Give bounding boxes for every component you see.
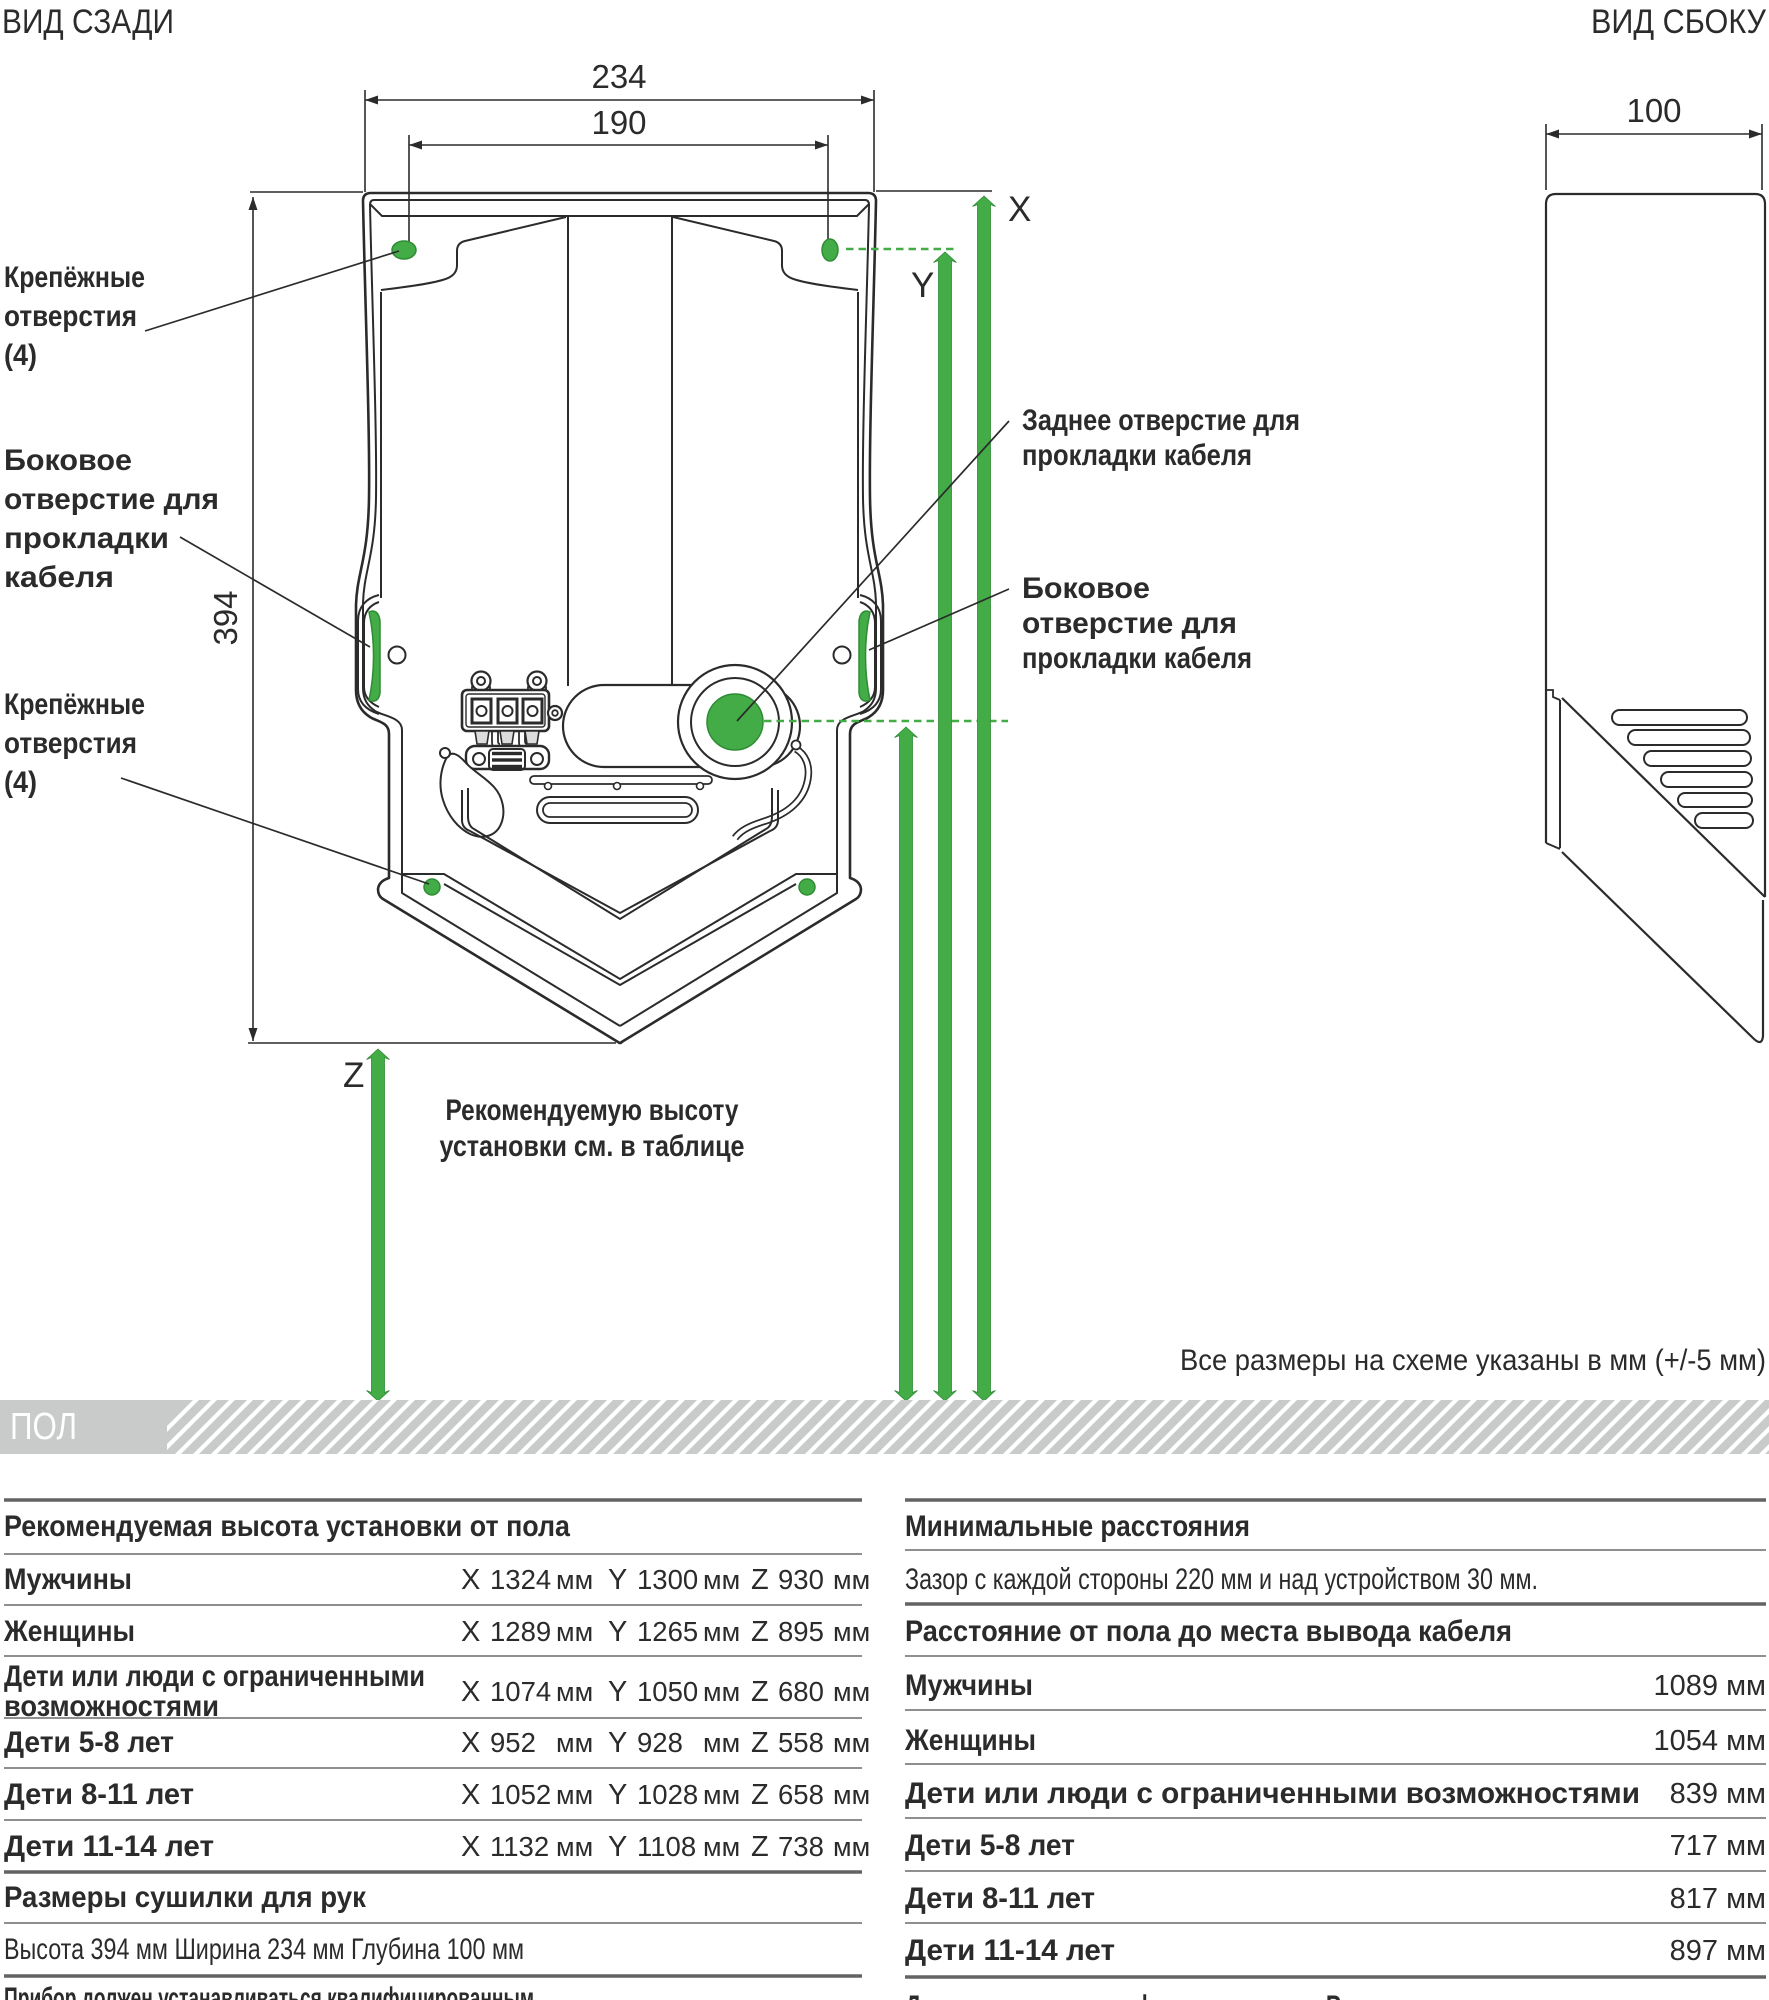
svg-text:мм: мм: [833, 1565, 870, 1595]
svg-text:100: 100: [1626, 92, 1681, 129]
svg-text:мм: мм: [703, 1728, 740, 1758]
svg-text:658: 658: [778, 1779, 824, 1810]
svg-text:Прибор должен устанавливаться: Прибор должен устанавливаться квалифицир…: [4, 1982, 534, 2000]
svg-text:ПОЛ: ПОЛ: [10, 1406, 77, 1448]
svg-text:1265: 1265: [637, 1616, 698, 1647]
svg-text:Дети или люди с ограниченными: Дети или люди с ограниченными: [4, 1660, 425, 1693]
svg-text:Мужчины: Мужчины: [4, 1563, 132, 1596]
svg-text:Дети или люди с ограниченными: Дети или люди с ограниченными возможност…: [905, 1777, 1640, 1810]
svg-text:Минимальные расстояния: Минимальные расстояния: [905, 1510, 1250, 1543]
svg-text:отверстия: отверстия: [4, 727, 137, 760]
svg-text:839 мм: 839 мм: [1670, 1778, 1766, 1810]
svg-text:Все размеры на схеме указаны в: Все размеры на схеме указаны в мм (+/-5 …: [1180, 1344, 1766, 1377]
svg-text:Дети 11-14 лет: Дети 11-14 лет: [4, 1830, 214, 1863]
svg-text:мм: мм: [556, 1780, 593, 1810]
svg-text:Дети 5-8 лет: Дети 5-8 лет: [4, 1726, 174, 1759]
svg-text:Крепёжные: Крепёжные: [4, 688, 145, 721]
svg-text:(4): (4): [4, 339, 37, 372]
svg-text:мм: мм: [833, 1832, 870, 1862]
svg-text:ВИД СЗАДИ: ВИД СЗАДИ: [2, 3, 174, 41]
svg-text:мм: мм: [833, 1677, 870, 1707]
svg-text:817 мм: 817 мм: [1670, 1883, 1766, 1915]
svg-text:1300: 1300: [637, 1564, 698, 1595]
svg-text:Дополнительную информацию см.: Дополнительную информацию см. в Руководс…: [905, 1990, 1605, 2000]
svg-text:Заднее отверстие для: Заднее отверстие для: [1022, 404, 1300, 437]
svg-text:Зазор с каждой стороны 220 мм: Зазор с каждой стороны 220 мм и над устр…: [905, 1563, 1538, 1596]
svg-text:1132: 1132: [490, 1831, 549, 1862]
svg-text:738: 738: [778, 1831, 824, 1862]
svg-text:мм: мм: [703, 1832, 740, 1862]
svg-text:отверстие для: отверстие для: [1022, 607, 1237, 640]
svg-text:мм: мм: [703, 1780, 740, 1810]
svg-text:Z: Z: [751, 1616, 769, 1648]
svg-text:кабеля: кабеля: [4, 561, 114, 594]
svg-text:Дети 5-8 лет: Дети 5-8 лет: [905, 1829, 1075, 1862]
svg-text:Боковое: Боковое: [4, 444, 132, 477]
svg-text:X: X: [461, 1676, 480, 1708]
svg-text:717 мм: 717 мм: [1670, 1830, 1766, 1862]
svg-text:(4): (4): [4, 766, 37, 799]
svg-text:Рекомендуемую высоту: Рекомендуемую высоту: [446, 1094, 739, 1127]
svg-text:897 мм: 897 мм: [1670, 1935, 1766, 1967]
svg-text:Z: Z: [751, 1831, 769, 1863]
svg-text:Дети 11-14 лет: Дети 11-14 лет: [905, 1934, 1115, 1967]
svg-text:952: 952: [490, 1727, 536, 1758]
svg-text:928: 928: [637, 1727, 683, 1758]
svg-text:X: X: [461, 1564, 480, 1596]
svg-text:отверстия: отверстия: [4, 300, 137, 333]
svg-text:ВИД СБОКУ: ВИД СБОКУ: [1591, 3, 1766, 41]
svg-text:1074: 1074: [490, 1676, 551, 1707]
svg-text:Расстояние от пола до места вы: Расстояние от пола до места вывода кабел…: [905, 1615, 1512, 1648]
svg-text:мм: мм: [703, 1565, 740, 1595]
svg-text:Размеры сушилки для рук: Размеры сушилки для рук: [4, 1881, 367, 1914]
svg-text:Y: Y: [608, 1727, 627, 1759]
svg-text:Y: Y: [608, 1831, 627, 1863]
svg-text:Y: Y: [608, 1616, 627, 1648]
svg-text:прокладки кабеля: прокладки кабеля: [1022, 439, 1252, 472]
svg-text:мм: мм: [556, 1617, 593, 1647]
svg-text:Y: Y: [608, 1676, 627, 1708]
svg-text:558: 558: [778, 1727, 824, 1758]
svg-text:190: 190: [591, 104, 646, 141]
svg-text:X: X: [461, 1727, 480, 1759]
svg-text:мм: мм: [833, 1728, 870, 1758]
svg-text:1289: 1289: [490, 1616, 551, 1647]
svg-text:прокладки кабеля: прокладки кабеля: [1022, 642, 1252, 675]
svg-text:Дети 8-11 лет: Дети 8-11 лет: [905, 1882, 1095, 1915]
svg-text:Высота 394 мм Ширина 234 мм Гл: Высота 394 мм Ширина 234 мм Глубина 100 …: [4, 1933, 524, 1966]
svg-text:мм: мм: [703, 1617, 740, 1647]
svg-text:установки см. в таблице: установки см. в таблице: [440, 1130, 745, 1163]
svg-text:Y: Y: [911, 266, 934, 305]
svg-text:отверстие для: отверстие для: [4, 483, 219, 516]
svg-text:Боковое: Боковое: [1022, 572, 1150, 605]
svg-text:Z: Z: [343, 1056, 364, 1095]
svg-text:Z: Z: [751, 1727, 769, 1759]
svg-text:мм: мм: [556, 1728, 593, 1758]
svg-text:Мужчины: Мужчины: [905, 1669, 1033, 1702]
svg-text:1108: 1108: [637, 1831, 696, 1862]
svg-text:394: 394: [207, 590, 244, 645]
svg-text:Рекомендуемая высота установки: Рекомендуемая высота установки от пола: [4, 1510, 570, 1543]
svg-text:X: X: [1008, 190, 1031, 229]
svg-text:Женщины: Женщины: [3, 1615, 135, 1648]
svg-text:Z: Z: [751, 1676, 769, 1708]
svg-text:прокладки: прокладки: [4, 522, 169, 555]
svg-text:X: X: [461, 1831, 480, 1863]
svg-text:Y: Y: [608, 1564, 627, 1596]
svg-text:X: X: [461, 1616, 480, 1648]
svg-text:мм: мм: [833, 1780, 870, 1810]
svg-text:1028: 1028: [637, 1779, 698, 1810]
svg-text:мм: мм: [833, 1617, 870, 1647]
svg-text:930: 930: [778, 1564, 824, 1595]
svg-text:680: 680: [778, 1676, 824, 1707]
svg-text:мм: мм: [556, 1565, 593, 1595]
svg-text:895: 895: [778, 1616, 824, 1647]
svg-text:1052: 1052: [490, 1779, 551, 1810]
svg-text:Z: Z: [751, 1564, 769, 1596]
svg-text:мм: мм: [556, 1832, 593, 1862]
svg-text:Крепёжные: Крепёжные: [4, 261, 145, 294]
svg-text:Y: Y: [608, 1779, 627, 1811]
svg-text:X: X: [461, 1779, 480, 1811]
svg-text:Z: Z: [751, 1779, 769, 1811]
svg-text:1054 мм: 1054 мм: [1654, 1725, 1766, 1757]
svg-text:Дети 8-11 лет: Дети 8-11 лет: [4, 1778, 194, 1811]
svg-text:мм: мм: [703, 1677, 740, 1707]
svg-text:234: 234: [591, 58, 646, 95]
svg-text:Женщины: Женщины: [904, 1724, 1036, 1757]
svg-text:1050: 1050: [637, 1676, 698, 1707]
svg-text:1089 мм: 1089 мм: [1654, 1670, 1766, 1702]
svg-text:мм: мм: [556, 1677, 593, 1707]
svg-text:1324: 1324: [490, 1564, 551, 1595]
